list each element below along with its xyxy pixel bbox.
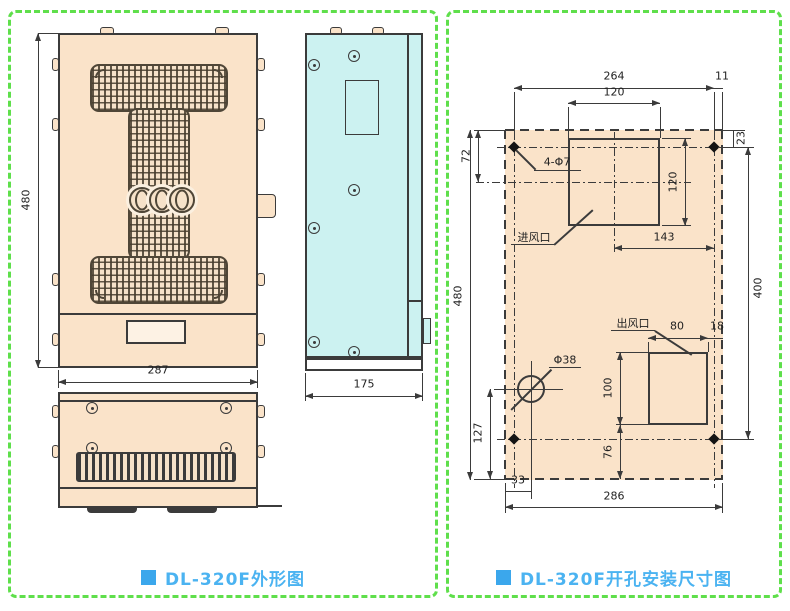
foot <box>87 506 137 513</box>
dim-18-label: 18 <box>710 320 724 333</box>
dim-480-ext-top <box>38 33 58 34</box>
dim-400-ext-bottom <box>718 439 754 440</box>
air-inlet-label: 进风口 <box>518 229 551 245</box>
dim-400-label: 400 <box>752 278 765 299</box>
dim-400-line <box>748 147 749 439</box>
right-caption: DL-320F开孔安装尺寸图 <box>449 565 779 590</box>
foot <box>167 506 217 513</box>
outline-drawing-panel: 480 287 <box>8 10 438 598</box>
dim-80-ext-right <box>708 342 709 352</box>
bottom-view-bottom-seam <box>58 487 258 489</box>
side-cutout-rect <box>345 80 379 135</box>
centerline-bottom-holes <box>497 439 741 440</box>
side-view-band-line <box>407 33 409 358</box>
dim-120h-label: 120 <box>667 172 680 193</box>
dim-120w-ext-left <box>568 107 569 138</box>
dim-127-line <box>490 389 491 479</box>
dim-11-line <box>714 88 723 89</box>
dim-11-label: 11 <box>715 70 729 83</box>
drawing-canvas: 480 287 <box>0 0 790 611</box>
cable-hole-label: Φ38 <box>554 354 577 367</box>
dim-143-label: 143 <box>654 231 675 244</box>
hinge-bump <box>257 333 265 346</box>
cord-line <box>258 505 282 507</box>
dim-80-ext-left <box>648 342 649 352</box>
dim-120w-ext-right <box>660 107 661 138</box>
dim-76-label: 76 <box>602 445 615 459</box>
dim-264-ext-right <box>714 92 715 132</box>
installation-drawing-panel: Φ38 4-Φ7 进风口 出风口 264 11 120 72 23 <box>446 10 782 598</box>
hinge-bump <box>257 58 265 71</box>
side-view-band-notch <box>407 300 423 302</box>
dim-264-ext-left <box>514 92 515 132</box>
dim-480r-ext-top <box>474 130 504 131</box>
outlet-opening-rect <box>648 352 708 425</box>
dim-100-label: 100 <box>602 378 615 399</box>
screw-icon <box>348 346 360 358</box>
cable-hole-label-underline <box>549 367 581 368</box>
hinge-bump <box>257 405 265 418</box>
dim-286-line <box>505 507 723 508</box>
screw-icon <box>348 50 360 62</box>
caption-bullet-icon <box>141 570 156 585</box>
dim-480-label: 480 <box>20 190 33 211</box>
right-caption-text: DL-320F开孔安装尺寸图 <box>520 565 732 590</box>
dim-286-label: 286 <box>604 490 625 503</box>
screw-icon <box>86 402 98 414</box>
mount-holes-label: 4-Φ7 <box>544 156 571 169</box>
dim-72-line <box>478 130 479 182</box>
mount-holes-label-underline <box>534 170 581 171</box>
wall-edge-right <box>721 130 723 480</box>
dim-76-line <box>620 425 621 479</box>
nameplate-rect <box>126 320 186 344</box>
caption-bullet-icon <box>496 570 511 585</box>
wall-edge-bottom <box>505 478 723 480</box>
dim-80-line <box>648 338 708 339</box>
left-caption-text: DL-320F外形图 <box>165 565 305 590</box>
dim-23-label: 23 <box>735 131 748 145</box>
vent-grille <box>76 452 236 482</box>
dim-480-line <box>38 33 39 368</box>
screw-icon <box>308 222 320 234</box>
hinge-bump <box>257 445 265 458</box>
air-inlet-underline <box>511 244 554 245</box>
dim-287-line <box>58 382 258 383</box>
dim-33-label: 33 <box>511 474 525 487</box>
dim-175-label: 175 <box>354 378 375 391</box>
dim-127-label: 127 <box>472 423 485 444</box>
dim-120w-label: 120 <box>604 86 625 99</box>
grille-bottom-bar <box>90 256 228 304</box>
wall-edge-top <box>505 129 723 131</box>
dim-480-ext-bottom <box>38 367 58 368</box>
screw-icon <box>348 184 360 196</box>
dim-18-line <box>708 338 723 339</box>
dim-480r-ext-bottom <box>474 479 504 480</box>
front-divider-line <box>58 313 258 315</box>
screw-icon <box>220 402 232 414</box>
dim-264-label: 264 <box>604 70 625 83</box>
screw-icon <box>308 336 320 348</box>
grille-top-bar <box>90 64 228 112</box>
screw-icon <box>308 59 320 71</box>
dim-33-line <box>505 491 531 492</box>
grille-circle <box>169 187 195 213</box>
dim-175-line <box>305 396 423 397</box>
grille-middle-column <box>128 108 190 260</box>
dim-143-line <box>614 248 714 249</box>
side-handle <box>256 194 276 218</box>
dim-127-ext-top <box>494 389 504 390</box>
dim-480r-label: 480 <box>452 286 465 307</box>
bottom-view-top-seam <box>58 400 258 402</box>
inlet-opening-rect <box>568 138 660 226</box>
dim-120w-line <box>568 103 660 104</box>
air-outlet-label: 出风口 <box>617 315 650 331</box>
dim-11-ext-right <box>722 92 723 130</box>
side-view-base <box>305 358 423 371</box>
air-outlet-underline <box>611 330 655 331</box>
dim-287-label: 287 <box>148 364 169 377</box>
dim-100-line <box>620 352 621 425</box>
cable-hole-crosshair-v <box>531 361 532 499</box>
side-view-handle <box>423 318 431 344</box>
hinge-bump <box>257 118 265 131</box>
left-caption: DL-320F外形图 <box>11 565 435 590</box>
dim-120h-line <box>685 138 686 226</box>
hinge-bump <box>257 273 265 286</box>
dim-80-label: 80 <box>670 320 684 333</box>
